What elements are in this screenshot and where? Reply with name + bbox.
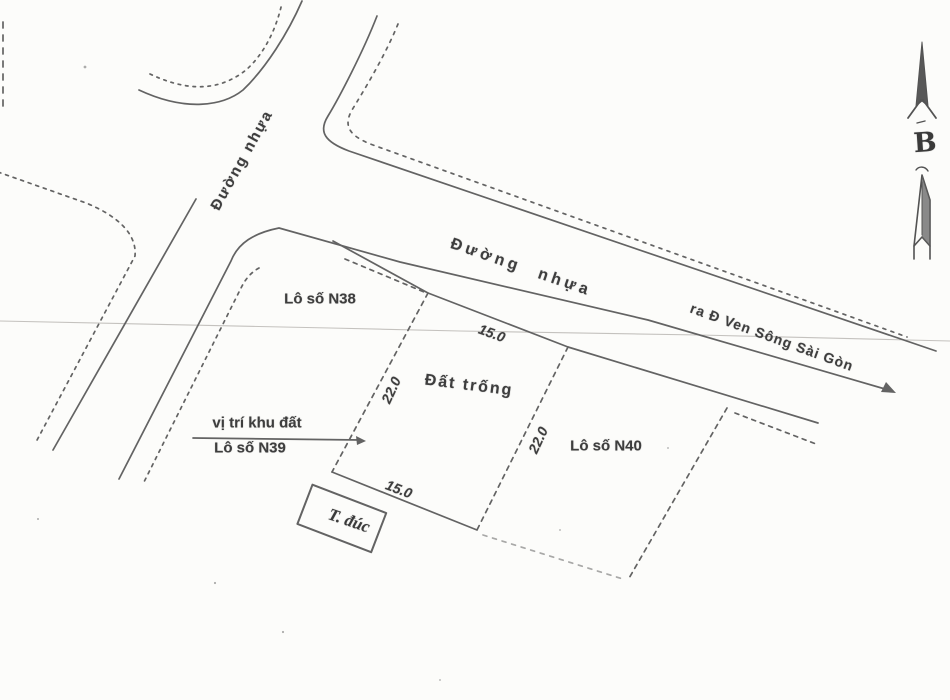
scanned-survey-sketch: Đường nhựa Đường nhựa ra Đ Ven Sông Sài … [0, 0, 950, 700]
plot-left-edge-dashed [332, 293, 428, 472]
plot-right-edge-dashed [477, 347, 568, 530]
n40-right-boundary-dashed [628, 408, 727, 580]
plot-n39-caption-line1: vị trí khu đất [212, 414, 301, 431]
n40-back-boundary-dashed [483, 535, 626, 580]
road-direction-arrowhead [881, 382, 896, 393]
left-road-outer-dashed [0, 172, 135, 442]
junction-fillet-dashed [150, 3, 282, 87]
main-road-top-dashed [348, 24, 907, 337]
lot-front-dashed-right [735, 413, 816, 444]
scan-artifact-line [0, 321, 950, 341]
scan-specks [37, 66, 669, 681]
plot-n39-caption: vị trí khu đất Lô số N39 [212, 411, 301, 461]
plot-n40-label: Lô số N40 [570, 438, 642, 455]
lot-front-dashed-left [345, 259, 424, 292]
main-road-top-edge [324, 16, 936, 351]
plot-n38-label: Lô số N38 [284, 291, 356, 308]
north-arrow-letter: B [913, 127, 938, 160]
n39-leader-tip [356, 436, 366, 445]
plot-n39-caption-line2: Lô số N39 [198, 436, 301, 461]
